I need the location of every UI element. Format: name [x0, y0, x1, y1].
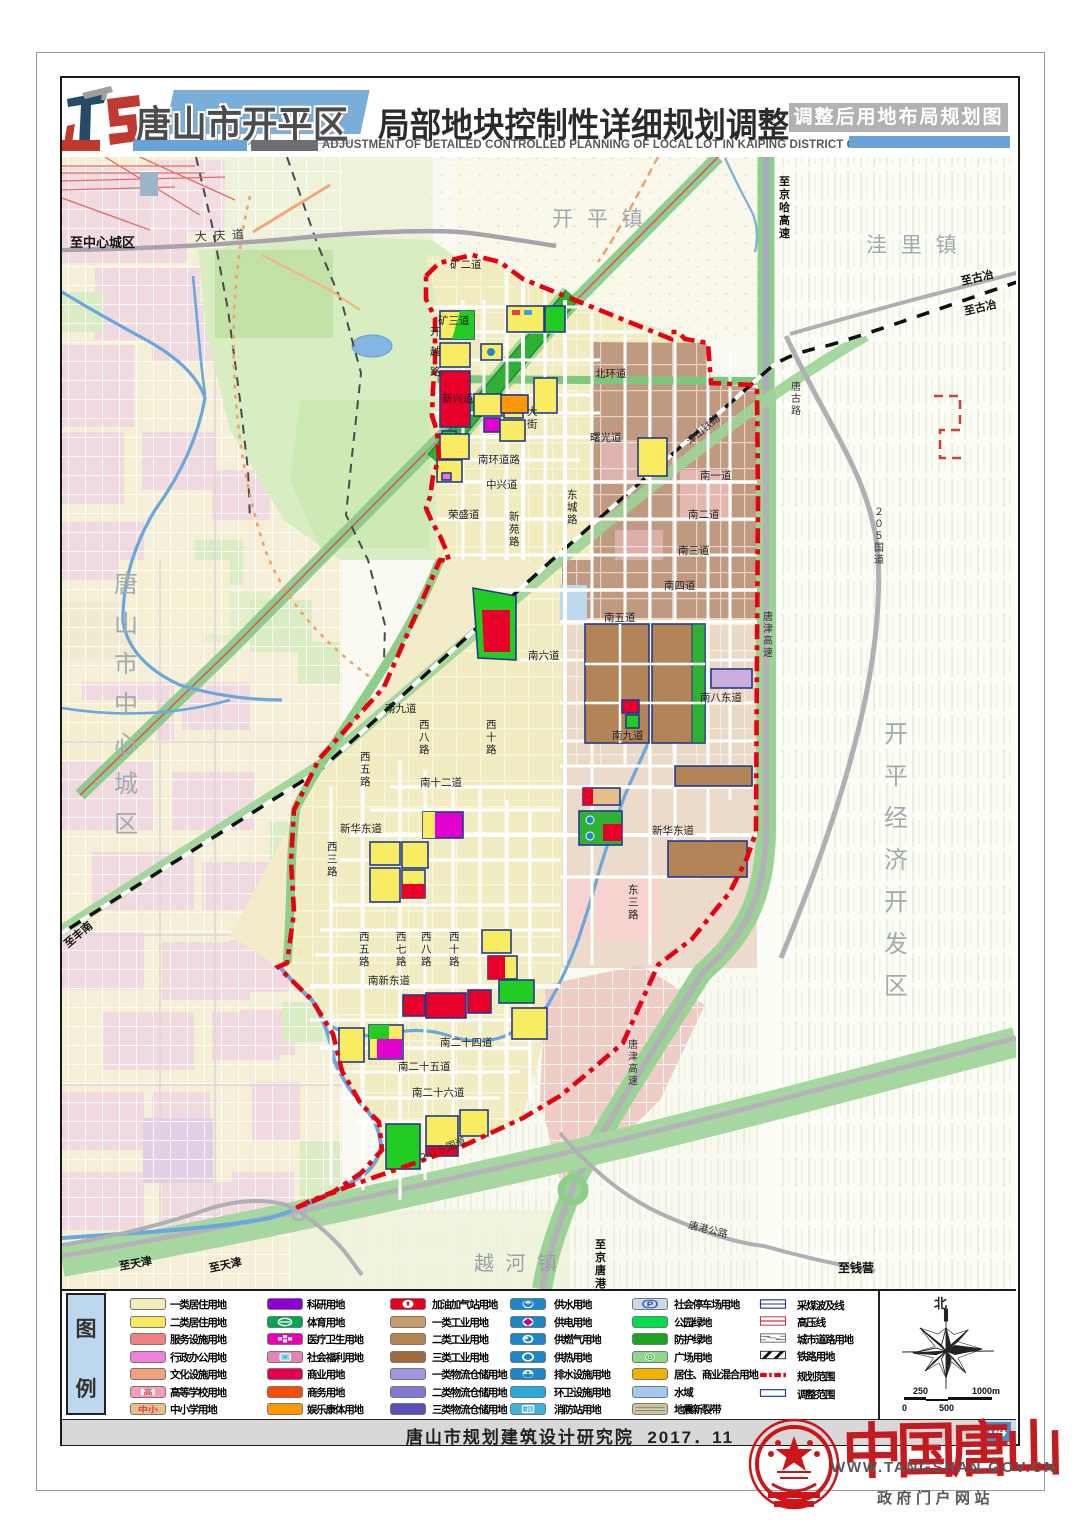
svg-text:西: 西: [360, 751, 371, 763]
svg-text:城: 城: [114, 771, 138, 798]
svg-text:唐: 唐: [628, 1038, 638, 1051]
svg-text:八: 八: [421, 944, 432, 956]
svg-text:至: 至: [779, 175, 790, 188]
svg-text:路: 路: [396, 955, 407, 968]
svg-text:三: 三: [327, 854, 338, 866]
svg-text:南二十四道: 南二十四道: [440, 1036, 493, 1049]
svg-text:苑: 苑: [509, 523, 520, 536]
svg-text:新: 新: [509, 510, 520, 523]
svg-text:港: 港: [595, 1276, 607, 1289]
svg-text:唐: 唐: [595, 1263, 606, 1277]
svg-text:P: P: [647, 1300, 654, 1309]
svg-text:南三道: 南三道: [678, 544, 710, 557]
svg-text:新华东道: 新华东道: [340, 822, 382, 835]
svg-text:心: 心: [114, 731, 138, 758]
svg-text:三: 三: [628, 897, 639, 909]
svg-text:250: 250: [913, 1386, 928, 1396]
svg-text:八: 八: [419, 732, 430, 744]
svg-text:大: 大: [527, 405, 538, 418]
svg-text:高: 高: [144, 1388, 153, 1397]
svg-text:路: 路: [449, 955, 460, 968]
svg-text:南新东道: 南新东道: [368, 974, 410, 987]
svg-text:市: 市: [114, 651, 138, 678]
svg-text:高: 高: [763, 634, 773, 647]
svg-text:至钱营: 至钱营: [838, 1260, 874, 1275]
svg-text:路: 路: [486, 743, 497, 756]
svg-text:七: 七: [396, 944, 407, 956]
svg-text:高: 高: [779, 213, 790, 227]
svg-text:大 庆 道: 大 庆 道: [194, 227, 244, 244]
svg-text:南九道: 南九道: [385, 702, 417, 715]
svg-text:西: 西: [396, 931, 407, 943]
svg-text:路: 路: [509, 535, 520, 548]
svg-text:洼 里 镇: 洼 里 镇: [866, 234, 961, 257]
svg-text:０: ０: [874, 519, 884, 530]
svg-text:中小: 中小: [138, 1404, 158, 1413]
svg-text:西: 西: [486, 719, 497, 731]
svg-text:越 河 镇: 越 河 镇: [474, 1252, 560, 1275]
svg-text:南六道: 南六道: [528, 649, 560, 662]
svg-text:路: 路: [628, 908, 639, 921]
svg-text:高: 高: [628, 1062, 638, 1075]
svg-text:山: 山: [114, 611, 138, 638]
svg-text:西: 西: [419, 719, 430, 731]
svg-text:东: 东: [567, 488, 578, 501]
svg-text:路: 路: [419, 743, 430, 756]
svg-text:至中心城区: 至中心城区: [70, 235, 135, 250]
svg-text:２: ２: [874, 507, 884, 518]
svg-text:路: 路: [430, 365, 441, 378]
svg-text:京: 京: [595, 1250, 606, 1264]
svg-text:南四道: 南四道: [664, 579, 696, 592]
svg-text:至: 至: [595, 1238, 606, 1251]
svg-text:路: 路: [359, 955, 370, 968]
svg-text:路: 路: [421, 955, 432, 968]
svg-text:开 平 镇: 开 平 镇: [552, 208, 647, 231]
svg-text:路: 路: [567, 513, 578, 526]
svg-text:北环道: 北环道: [595, 367, 627, 380]
svg-text:南二十五道: 南二十五道: [398, 1060, 451, 1073]
svg-text:城: 城: [567, 502, 578, 514]
svg-text:速: 速: [628, 1075, 638, 1087]
svg-text:西: 西: [421, 931, 432, 943]
svg-text:荣盛道: 荣盛道: [448, 508, 480, 521]
svg-text:津: 津: [628, 1051, 638, 1063]
svg-text:西: 西: [449, 931, 460, 943]
svg-text:唐: 唐: [763, 610, 773, 623]
svg-text:速: 速: [779, 226, 790, 240]
svg-text:十: 十: [486, 731, 497, 744]
svg-text:中兴道: 中兴道: [486, 478, 518, 491]
svg-text:中: 中: [114, 691, 138, 718]
svg-text:五: 五: [359, 944, 370, 956]
svg-text:南五道: 南五道: [604, 611, 636, 624]
svg-text:西: 西: [359, 931, 370, 943]
svg-text:开: 开: [884, 889, 908, 916]
svg-text:五: 五: [360, 764, 371, 776]
svg-text:京: 京: [779, 187, 790, 201]
svg-text:矿三道: 矿三道: [438, 314, 470, 327]
svg-text:古: 古: [791, 392, 801, 405]
svg-text:南一道: 南一道: [700, 469, 732, 482]
svg-text:路: 路: [791, 404, 801, 417]
svg-text:发: 发: [884, 931, 908, 958]
svg-text:西: 西: [327, 841, 338, 853]
svg-text:新兴道: 新兴道: [442, 392, 474, 405]
svg-text:曙光道: 曙光道: [590, 431, 622, 444]
svg-text:1000m: 1000m: [972, 1386, 1000, 1396]
svg-text:南十二道: 南十二道: [420, 776, 462, 789]
svg-text:国: 国: [874, 542, 884, 554]
svg-text:津: 津: [763, 623, 773, 635]
svg-text:唐: 唐: [791, 380, 801, 393]
svg-text:新华东道: 新华东道: [652, 824, 694, 837]
svg-text:唐: 唐: [114, 571, 138, 598]
svg-text:南九道: 南九道: [612, 729, 644, 742]
svg-text:开: 开: [884, 721, 908, 748]
svg-text:南二道: 南二道: [688, 508, 720, 521]
svg-text:平: 平: [884, 763, 908, 790]
svg-text:开: 开: [430, 326, 441, 338]
svg-text:南二十六道: 南二十六道: [412, 1086, 465, 1099]
svg-text:经: 经: [884, 805, 908, 832]
svg-text:５: ５: [874, 531, 884, 542]
svg-text:南环道路: 南环道路: [478, 453, 520, 466]
svg-text:路: 路: [360, 775, 371, 788]
svg-text:哈: 哈: [779, 200, 790, 214]
svg-text:区: 区: [884, 973, 908, 1000]
svg-text:消: 消: [524, 1406, 532, 1414]
svg-text:速: 速: [763, 647, 773, 659]
svg-text:路: 路: [327, 865, 338, 878]
svg-text:东: 东: [628, 883, 639, 896]
svg-text:南八东道: 南八东道: [700, 691, 742, 704]
svg-text:越: 越: [430, 345, 441, 358]
svg-text:矿二道: 矿二道: [450, 258, 482, 271]
svg-text:街: 街: [527, 418, 538, 431]
svg-text:十: 十: [449, 943, 460, 956]
svg-text:区: 区: [114, 811, 138, 838]
svg-text:道: 道: [874, 553, 884, 566]
svg-text:济: 济: [884, 847, 908, 874]
